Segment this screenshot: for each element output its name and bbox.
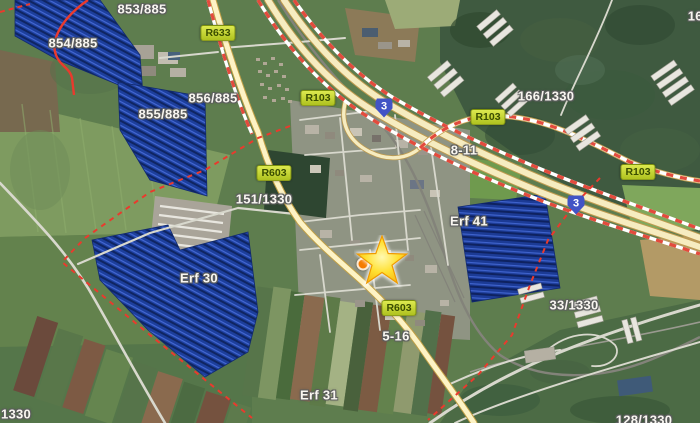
route-badge-r603: R603 [256,165,291,181]
parcel-label: 151/1330 [236,192,293,207]
route-badge-r103: R103 [620,164,655,180]
parcel-label: 166/1330 [518,89,575,104]
parcel-label: 855/885 [138,107,187,122]
parcel-label: Erf 30 [180,271,218,286]
parcel-label: 1330 [1,407,31,422]
parcel-label: Erf 41 [450,214,488,229]
parcel-label: Erf 31 [300,388,338,403]
national-route-shield: 3 [568,196,585,215]
route-badge-r103: R103 [300,90,335,106]
parcel-label: 166/1330 [688,9,700,24]
parcel-label: 8-11 [451,143,478,158]
parcel-label: 5-16 [382,329,409,344]
star-marker[interactable] [354,235,410,289]
map-overlay: 853/885854/885856/885855/885151/1330166/… [0,0,700,423]
satellite-map[interactable]: 853/885854/885856/885855/885151/1330166/… [0,0,700,423]
route-badge-r103: R103 [470,109,505,125]
national-route-shield: 3 [376,99,393,118]
parcel-label: 856/885 [188,91,237,106]
parcel-label: 854/885 [48,36,97,51]
route-badge-r603: R603 [381,300,416,316]
parcel-label: 33/1330 [549,298,598,313]
parcel-label: 853/885 [117,2,166,17]
route-badge-r633: R633 [200,25,235,41]
parcel-label: 128/1330 [616,413,673,423]
